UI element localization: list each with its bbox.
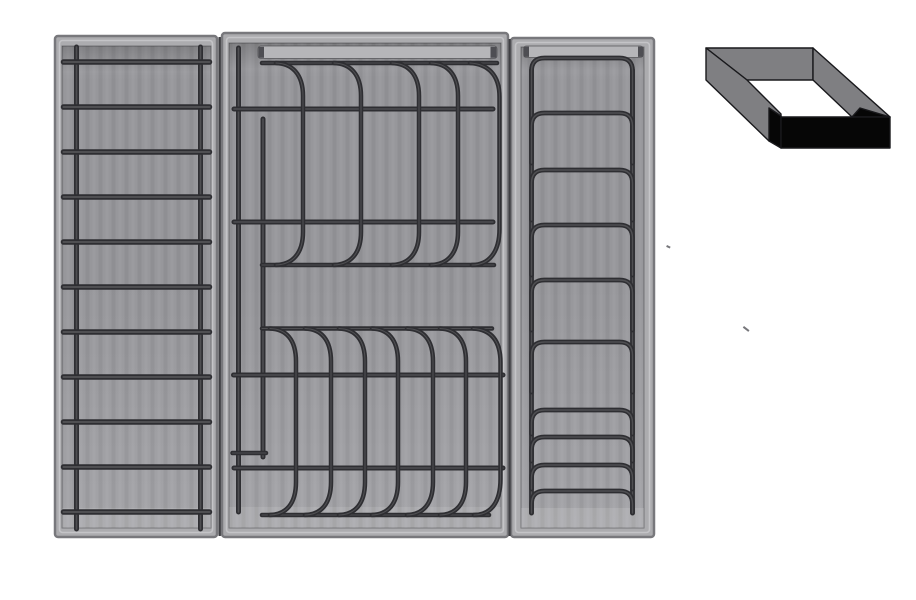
left-tray — [55, 36, 217, 537]
left-tray-inner-shadow — [62, 46, 211, 72]
drawer-organizer-render — [0, 0, 916, 600]
right-tray-floor-texture — [521, 47, 644, 528]
middle-tray — [222, 33, 508, 537]
icon-front-wall-face — [781, 117, 890, 148]
middle-tray-handle-bar — [258, 46, 497, 59]
middle-tray-handle-cap-left — [259, 47, 265, 58]
right-tray-bottom-highlight — [521, 508, 644, 528]
middle-tray-handle-cap-right — [491, 47, 497, 58]
icon-left-corner-cap — [769, 108, 781, 148]
right-tray-handle-cap-right — [638, 47, 643, 57]
product-image-canvas — [0, 0, 916, 600]
middle-tray-bottom-highlight — [229, 507, 501, 528]
right-tray — [511, 38, 654, 537]
right-tray-handle-cap-left — [524, 47, 529, 57]
